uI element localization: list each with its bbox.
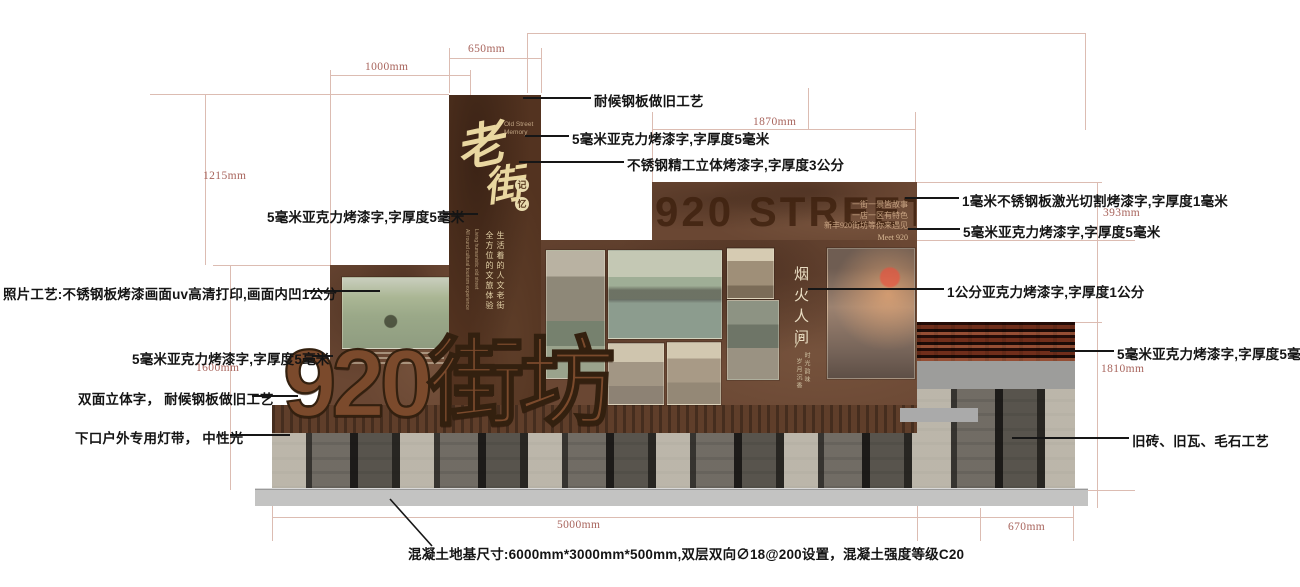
annotation-acrylic-5mm-left-upper: 5毫米亚克力烤漆字,字厚度5毫米 [267,206,464,226]
annotation-weathered-steel-top: 耐候钢板做旧工艺 [594,90,704,110]
annotation-acrylic-5mm-top: 5毫米亚克力烤漆字,字厚度5毫米 [572,128,769,148]
annotation-acrylic-5mm-right-upper: 5毫米亚克力烤漆字,字厚度5毫米 [963,221,1160,241]
annotation-acrylic-1cm: 1公分亚克力烤漆字,字厚度1公分 [947,281,1144,301]
annotation-double-sided-letters: 双面立体字， 耐候钢板做旧工艺 [78,388,274,408]
annotation-stainless-3cm: 不锈钢精工立体烤漆字,字厚度3公分 [627,154,844,174]
annotation-photo-uv-print: 照片工艺:不锈钢板烤漆画面uv高清打印,画面内凹1公分 [3,283,337,303]
annotation-acrylic-5mm-right-lower: 5毫米亚克力烤漆字,字厚度5毫米 [1117,343,1300,363]
annotation-light-strip: 下口户外专用灯带， 中性光 [75,427,243,447]
annotation-acrylic-5mm-left-mid: 5毫米亚克力烤漆字,字厚度5毫米 [132,348,329,368]
design-drawing-canvas: 650mm 1000mm 1870mm 1215mm 1600mm 393mm … [0,0,1300,587]
foundation-note: 混凝土地基尺寸:6000mm*3000mm*500mm,双层双向∅18@200设… [408,543,964,563]
annotation-laser-cut-1mm: 1毫米不锈钢板激光切割烤漆字,字厚度1毫米 [962,190,1228,210]
annotation-old-brick-stone: 旧砖、旧瓦、毛石工艺 [1132,430,1269,450]
